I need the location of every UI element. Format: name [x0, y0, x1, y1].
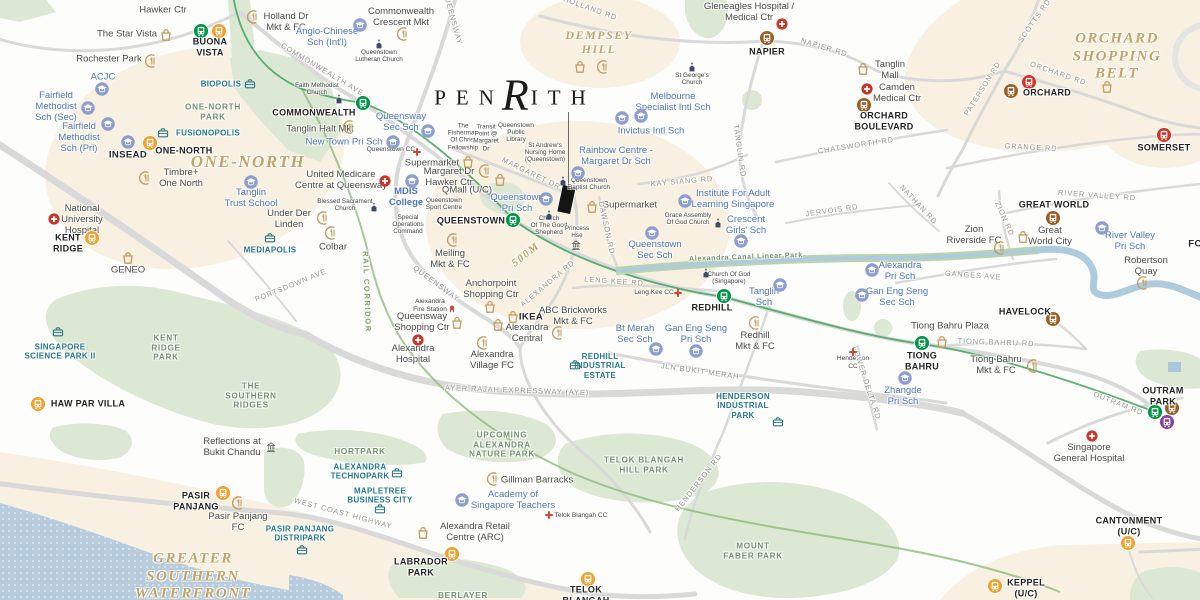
location-map: PENRITH Hawker CtrThe Star VistaHolland …: [0, 0, 1200, 600]
reservoir: [1168, 362, 1181, 372]
singapore-river: [1038, 249, 1200, 301]
project-title: PENRITH: [434, 73, 596, 124]
title-pre: PEN: [434, 86, 504, 110]
site-leader-line: [568, 112, 569, 187]
title-script-letter: R: [502, 71, 529, 120]
title-post: ITH: [531, 86, 596, 110]
map-base-layers: [0, 0, 1200, 600]
